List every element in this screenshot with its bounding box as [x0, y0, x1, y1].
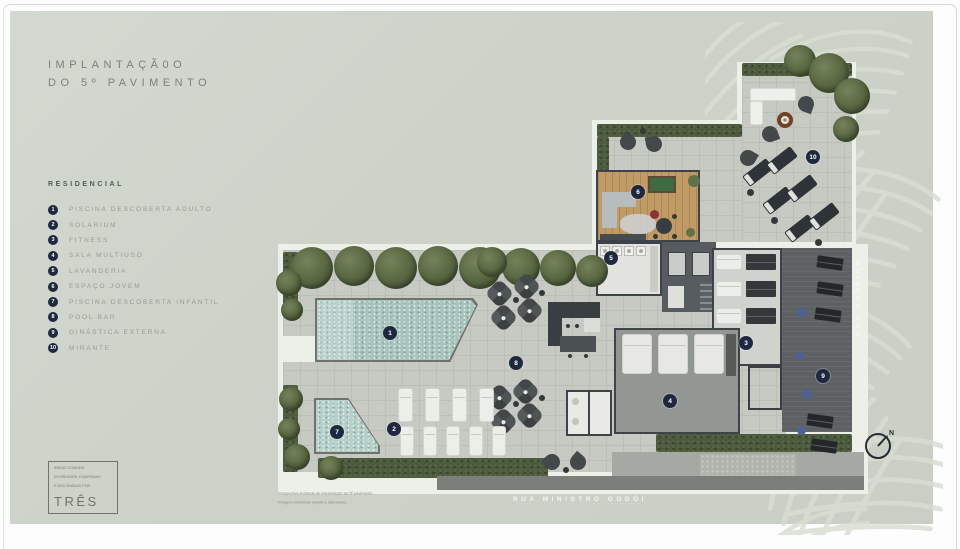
disclaimer-line: Perspectiva ilustrada de implantação do … — [278, 491, 373, 497]
plan-marker-10: 10 — [806, 150, 820, 164]
plan-marker-6: 6 — [631, 185, 645, 199]
compass-north-label: N — [889, 430, 894, 437]
plan-marker-1: 1 — [383, 326, 397, 340]
plan-marker-5: 5 — [604, 251, 618, 265]
plan-disclaimer: Perspectiva ilustrada de implantação do … — [278, 491, 423, 510]
plan-marker-7: 7 — [330, 425, 344, 439]
street-label-bottom: RUA MINISTRO GODÓI — [505, 496, 655, 503]
plan-marker-4: 4 — [663, 394, 677, 408]
compass: N — [860, 426, 898, 464]
plan-marker-8: 8 — [509, 356, 523, 370]
plan-markers: 12345678910 — [0, 0, 960, 549]
screenshot-root: IMPLANTAÇÃ0O DO 5º PAVIMENTO RESIDENCIAL… — [0, 0, 960, 549]
street-label-right: RUA BARTIRA — [855, 240, 862, 336]
plan-marker-9: 9 — [816, 369, 830, 383]
plan-marker-3: 3 — [739, 336, 753, 350]
plan-marker-2: 2 — [387, 422, 401, 436]
disclaimer-line: Imagem preliminar sujeita a alterações. — [278, 500, 373, 506]
